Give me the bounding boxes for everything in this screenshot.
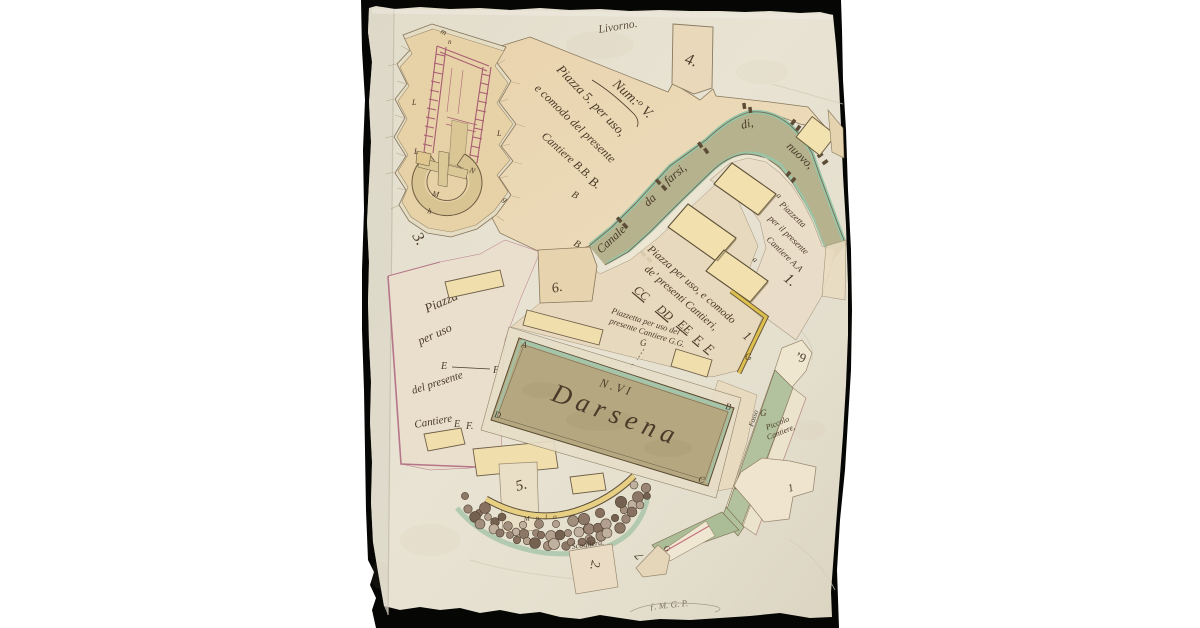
svg-text:L: L — [496, 129, 502, 138]
svg-text:G: G — [760, 408, 767, 418]
svg-text:n: n — [448, 38, 452, 46]
svg-text:G: G — [745, 352, 752, 362]
svg-text:L: L — [413, 147, 419, 156]
svg-text:L: L — [411, 98, 417, 107]
svg-text:G: G — [640, 338, 647, 348]
svg-text:E: E — [440, 361, 447, 372]
svg-text:F.: F. — [465, 421, 473, 432]
